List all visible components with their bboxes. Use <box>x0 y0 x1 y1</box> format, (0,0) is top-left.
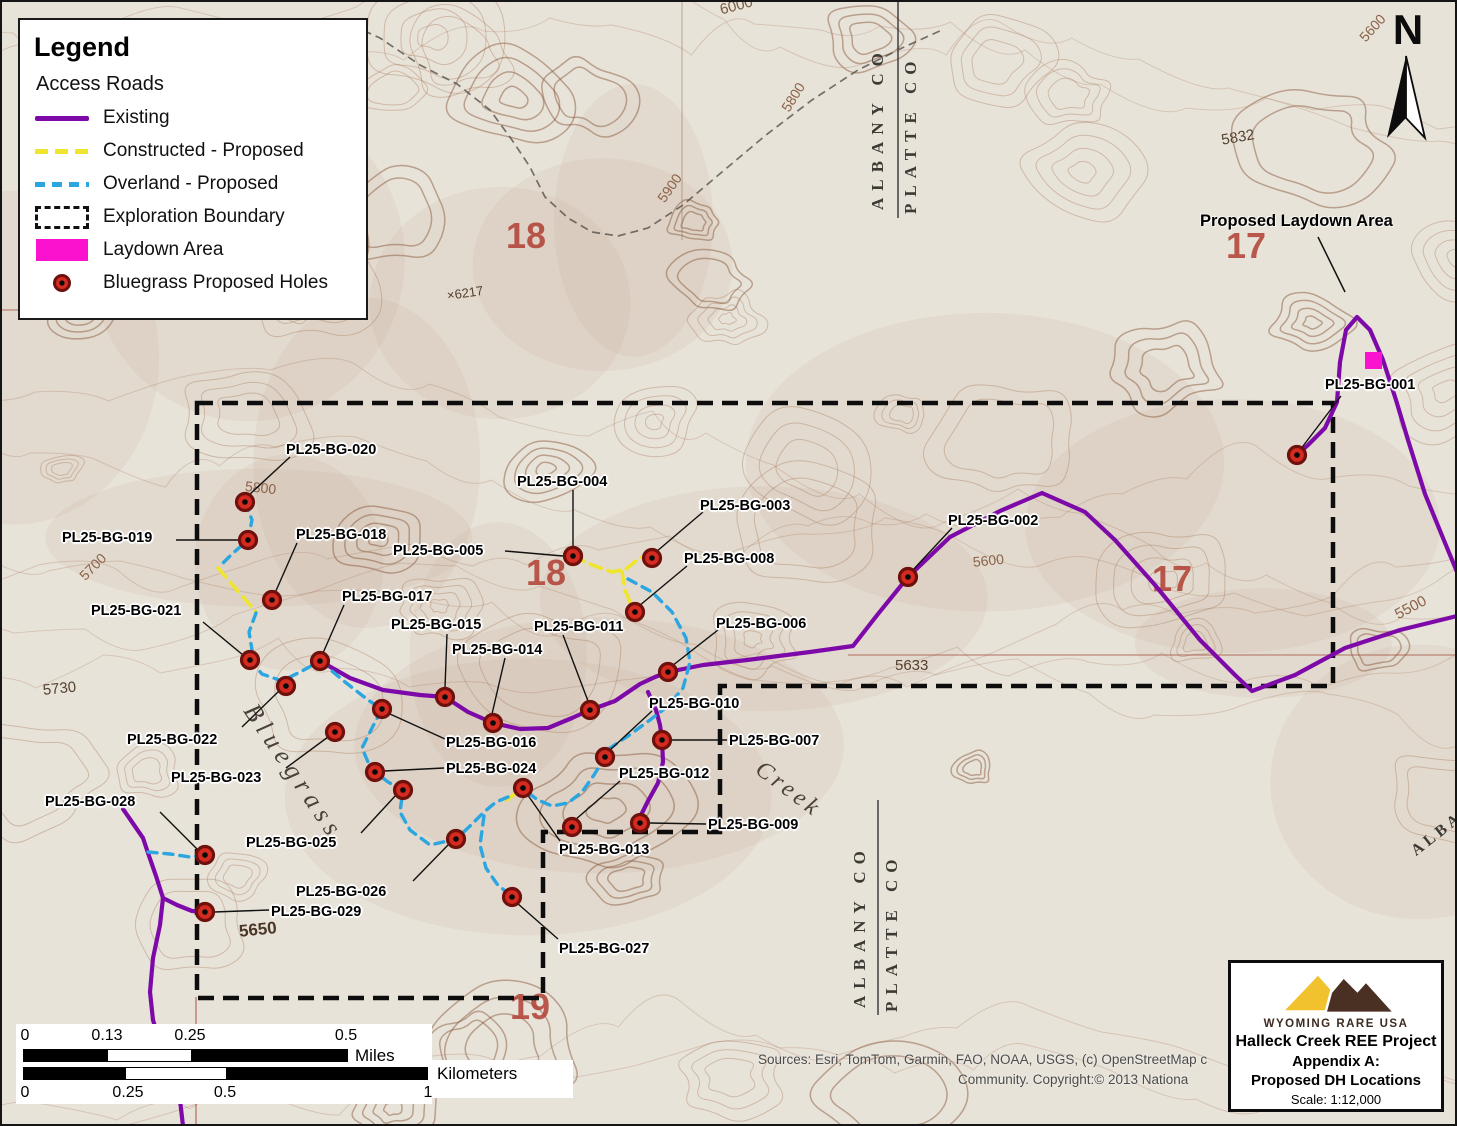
hole-marker <box>515 780 532 797</box>
hole-marker <box>240 532 257 549</box>
hole-leader-line <box>413 844 449 881</box>
hole-marker <box>654 732 671 749</box>
hole-leader-line <box>160 812 198 850</box>
overland-proposed-road <box>249 613 320 681</box>
hole-leader-line <box>203 622 243 655</box>
hole-marker <box>660 664 677 681</box>
constructed-proposed-road <box>218 568 256 612</box>
constructed-proposed-road <box>573 555 652 572</box>
hole-leader-line <box>672 630 718 666</box>
exploration-boundary-swatch <box>34 206 90 229</box>
existing-road <box>320 493 1457 729</box>
laydown-callout-label: Proposed Laydown Area <box>1200 212 1393 231</box>
legend-item-label: Overland - Proposed <box>103 173 278 195</box>
laydown-leader-line <box>1318 237 1345 292</box>
proposed-hole-swatch <box>34 272 90 294</box>
map-subtitle: Proposed DH Locations <box>1231 1072 1441 1089</box>
hole-leader-line <box>517 903 558 939</box>
hole-leader-line <box>286 737 328 768</box>
hole-marker <box>627 604 644 621</box>
hole-leader-line <box>492 658 505 714</box>
legend-item-label: Bluegrass Proposed Holes <box>103 272 328 294</box>
hole-marker <box>564 819 581 836</box>
km-tick: 1 <box>424 1084 433 1102</box>
hole-leader-line <box>575 781 620 820</box>
hole-marker <box>367 764 384 781</box>
legend-subtitle: Access Roads <box>36 73 352 96</box>
overland-proposed-road <box>480 816 512 897</box>
hole-marker <box>900 569 917 586</box>
legend-panel: Legend Access Roads Existing Constructed… <box>18 18 368 320</box>
constructed-road-swatch <box>34 149 90 154</box>
laydown-area-swatch <box>34 239 90 261</box>
hole-marker <box>1289 447 1306 464</box>
existing-road-swatch <box>34 116 90 121</box>
overland-proposed-road <box>527 579 690 806</box>
wyoming-rare-usa-logo <box>1271 967 1401 1015</box>
miles-unit-label: Miles <box>355 1046 395 1066</box>
hole-marker <box>565 548 582 565</box>
compass-needle-icon <box>1378 52 1438 144</box>
km-tick: 0 <box>21 1084 30 1102</box>
sources-credit-line2: Community. Copyright:© 2013 Nationa <box>958 1072 1188 1087</box>
hole-symbol-icon <box>51 272 73 294</box>
map-scale: Scale: 1:12,000 <box>1231 1092 1441 1107</box>
project-title: Halleck Creek REE Project <box>1231 1033 1441 1051</box>
hole-marker <box>242 652 259 669</box>
km-tick: 0.5 <box>214 1084 236 1102</box>
legend-item-label: Constructed - Proposed <box>103 140 304 162</box>
hole-leader-line <box>384 768 444 771</box>
overland-road-swatch <box>34 182 90 187</box>
hole-marker <box>327 724 344 741</box>
hole-marker <box>197 904 214 921</box>
north-letter: N <box>1378 8 1438 52</box>
hole-marker <box>582 702 599 719</box>
hole-leader-line <box>656 512 703 552</box>
org-name: WYOMING RARE USA <box>1231 1018 1441 1030</box>
hole-marker <box>278 678 295 695</box>
hole-marker <box>395 782 412 799</box>
title-block: WYOMING RARE USA Halleck Creek REE Proje… <box>1228 960 1444 1112</box>
kilometers-unit-label: Kilometers <box>437 1064 517 1084</box>
miles-tick: 0.5 <box>335 1027 357 1045</box>
miles-tick: 0.13 <box>91 1027 122 1045</box>
hole-marker <box>437 689 454 706</box>
hole-marker <box>312 653 329 670</box>
hole-marker <box>632 815 649 832</box>
km-tick: 0.25 <box>112 1084 143 1102</box>
hole-marker <box>237 494 254 511</box>
exploration-boundary <box>197 403 1333 998</box>
hole-leader-line <box>214 910 269 912</box>
map-screenshot: 60005800590018×6217580018570057305633560… <box>0 0 1457 1126</box>
hole-leader-line <box>650 823 706 824</box>
hole-leader-line <box>563 635 588 701</box>
hole-marker <box>504 889 521 906</box>
miles-tick: 0 <box>21 1027 30 1045</box>
hole-leader-line <box>361 795 396 833</box>
hole-leader-line <box>275 543 297 593</box>
appendix-label: Appendix A: <box>1231 1053 1441 1070</box>
legend-item-holes: Bluegrass Proposed Holes <box>34 271 352 295</box>
legend-item-label: Existing <box>103 107 170 129</box>
legend-title: Legend <box>34 32 352 63</box>
legend-item-laydown: Laydown Area <box>34 238 352 262</box>
kilometers-bar <box>23 1067 428 1080</box>
hole-marker <box>374 701 391 718</box>
hole-leader-line <box>242 691 279 727</box>
hole-leader-line <box>609 711 652 751</box>
hole-marker <box>264 592 281 609</box>
hole-leader-line <box>323 605 344 653</box>
miles-tick: 0.25 <box>174 1027 205 1045</box>
hole-leader-line <box>505 551 563 556</box>
legend-item-boundary: Exploration Boundary <box>34 205 352 229</box>
north-arrow: N <box>1378 8 1438 149</box>
hole-leader-line <box>390 714 445 739</box>
hole-marker <box>644 550 661 567</box>
hole-marker <box>485 715 502 732</box>
legend-item-constructed: Constructed - Proposed <box>34 139 352 163</box>
legend-item-existing: Existing <box>34 106 352 130</box>
hole-leader-line <box>912 528 952 571</box>
hole-leader-line <box>445 634 447 688</box>
sources-credit-line1: Sources: Esri, TomTom, Garmin, FAO, NOAA… <box>758 1052 1207 1067</box>
legend-item-label: Laydown Area <box>103 239 223 261</box>
hole-marker <box>448 831 465 848</box>
hole-leader-line <box>639 566 687 606</box>
hole-marker <box>197 847 214 864</box>
laydown-area <box>1365 352 1382 369</box>
legend-item-overland: Overland - Proposed <box>34 172 352 196</box>
hole-leader-line <box>249 457 290 495</box>
hole-marker <box>597 749 614 766</box>
legend-item-label: Exploration Boundary <box>103 206 285 228</box>
miles-bar <box>23 1049 348 1062</box>
